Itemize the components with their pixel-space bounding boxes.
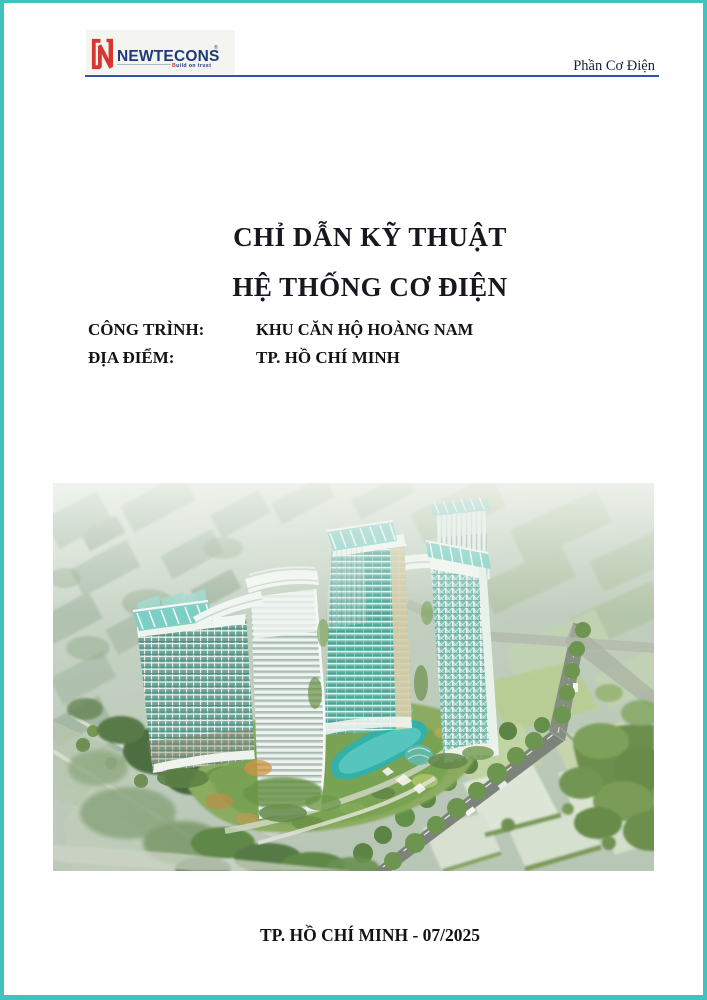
svg-text:Build on trust: Build on trust bbox=[172, 63, 211, 69]
svg-text:®: ® bbox=[214, 44, 218, 51]
